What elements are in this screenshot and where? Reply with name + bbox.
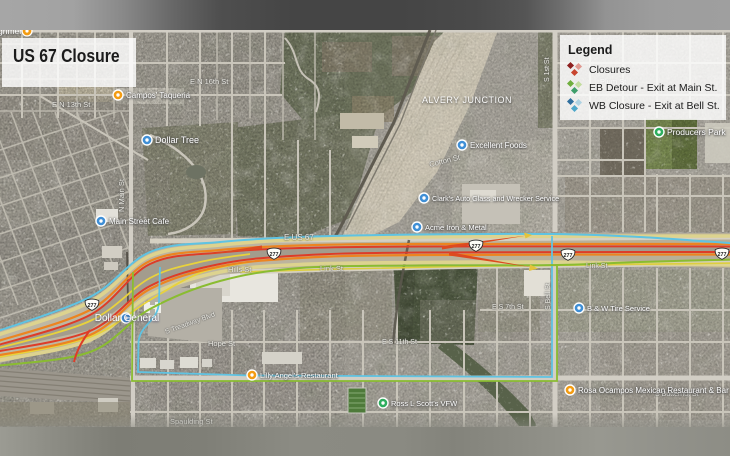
svg-text:Excellent Foods: Excellent Foods <box>470 141 527 150</box>
svg-text:Main Street Cafe: Main Street Cafe <box>109 217 170 226</box>
svg-text:Clark's Auto Glass and Wrecker: Clark's Auto Glass and Wrecker Service <box>432 194 559 203</box>
svg-text:Link St: Link St <box>320 264 344 273</box>
svg-text:277: 277 <box>718 252 727 258</box>
svg-text:Hope St: Hope St <box>208 339 236 348</box>
svg-text:Ross L Scott's VFW: Ross L Scott's VFW <box>391 399 458 408</box>
svg-text:E S 7th St: E S 7th St <box>492 304 524 311</box>
svg-text:Lilly Angel's Restaurant: Lilly Angel's Restaurant <box>260 371 339 380</box>
svg-text:277: 277 <box>564 253 573 259</box>
svg-text:Producers Park: Producers Park <box>667 127 726 137</box>
svg-text:Hills St: Hills St <box>228 265 252 274</box>
svg-text:Dollar General: Dollar General <box>95 313 159 324</box>
svg-text:Link St: Link St <box>586 263 607 270</box>
svg-text:B & W Tire Service: B & W Tire Service <box>587 304 650 313</box>
svg-text:277: 277 <box>472 244 481 250</box>
svg-text:Dollar Tree: Dollar Tree <box>155 135 199 145</box>
svg-text:S 1st St: S 1st St <box>544 57 551 82</box>
svg-text:E N 13th St: E N 13th St <box>52 100 91 109</box>
svg-text:Rosa Ocampos Mexican Restauran: Rosa Ocampos Mexican Restaurant & Bar <box>578 386 729 395</box>
svg-text:N Main St: N Main St <box>117 178 126 212</box>
svg-text:277: 277 <box>270 252 279 258</box>
svg-text:E US 67: E US 67 <box>284 233 314 242</box>
svg-text:Acme Iron & Metal: Acme Iron & Metal <box>425 223 487 232</box>
svg-text:E N 16th St: E N 16th St <box>190 77 229 86</box>
svg-text:E S 11th St: E S 11th St <box>382 339 417 346</box>
svg-text:277: 277 <box>88 303 97 309</box>
svg-text:ALVERY JUNCTION: ALVERY JUNCTION <box>422 95 512 105</box>
svg-text:Campos' Taqueria: Campos' Taqueria <box>126 91 191 100</box>
svg-text:S Bell St: S Bell St <box>545 283 552 310</box>
